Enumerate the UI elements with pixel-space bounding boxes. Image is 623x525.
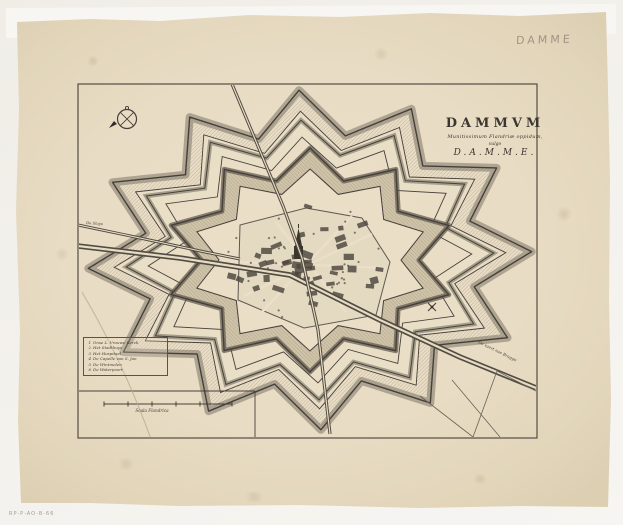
map-title-vernacular: D.A.M.M.E. bbox=[436, 148, 554, 159]
catalog-number: RP-P-AO-B-66 bbox=[9, 511, 54, 517]
legend-item-number: 6 bbox=[87, 367, 91, 372]
map-subtitle: Munitissimum Flandriæ oppidum, bbox=[436, 134, 554, 140]
map-title-cartouche: DAMMVM Munitissimum Flandriæ oppidum, vu… bbox=[436, 116, 554, 159]
legend-box: 1Onse L. Vrouwe Kerck2Het Stadthuys3Het … bbox=[83, 337, 168, 376]
pencil-annotation: DAMME bbox=[516, 32, 597, 47]
canal-label: De vaert nae Brugge bbox=[477, 339, 519, 363]
legend-item: 6De Waterpoort bbox=[87, 367, 165, 372]
map-vulgo: vulgo bbox=[436, 142, 554, 148]
road-left-label: De Sluys bbox=[85, 220, 103, 226]
scan-stage: De vaert nae Brugge De Sluys Scala Fland… bbox=[0, 0, 623, 525]
legend-item-label: De Waterpoort bbox=[93, 367, 123, 372]
scale-bar-label: Scala Flandrica bbox=[135, 408, 169, 413]
map-title: DAMMVM bbox=[436, 116, 554, 132]
map-labels-layer: De vaert nae Brugge De Sluys Scala Fland… bbox=[0, 0, 623, 525]
